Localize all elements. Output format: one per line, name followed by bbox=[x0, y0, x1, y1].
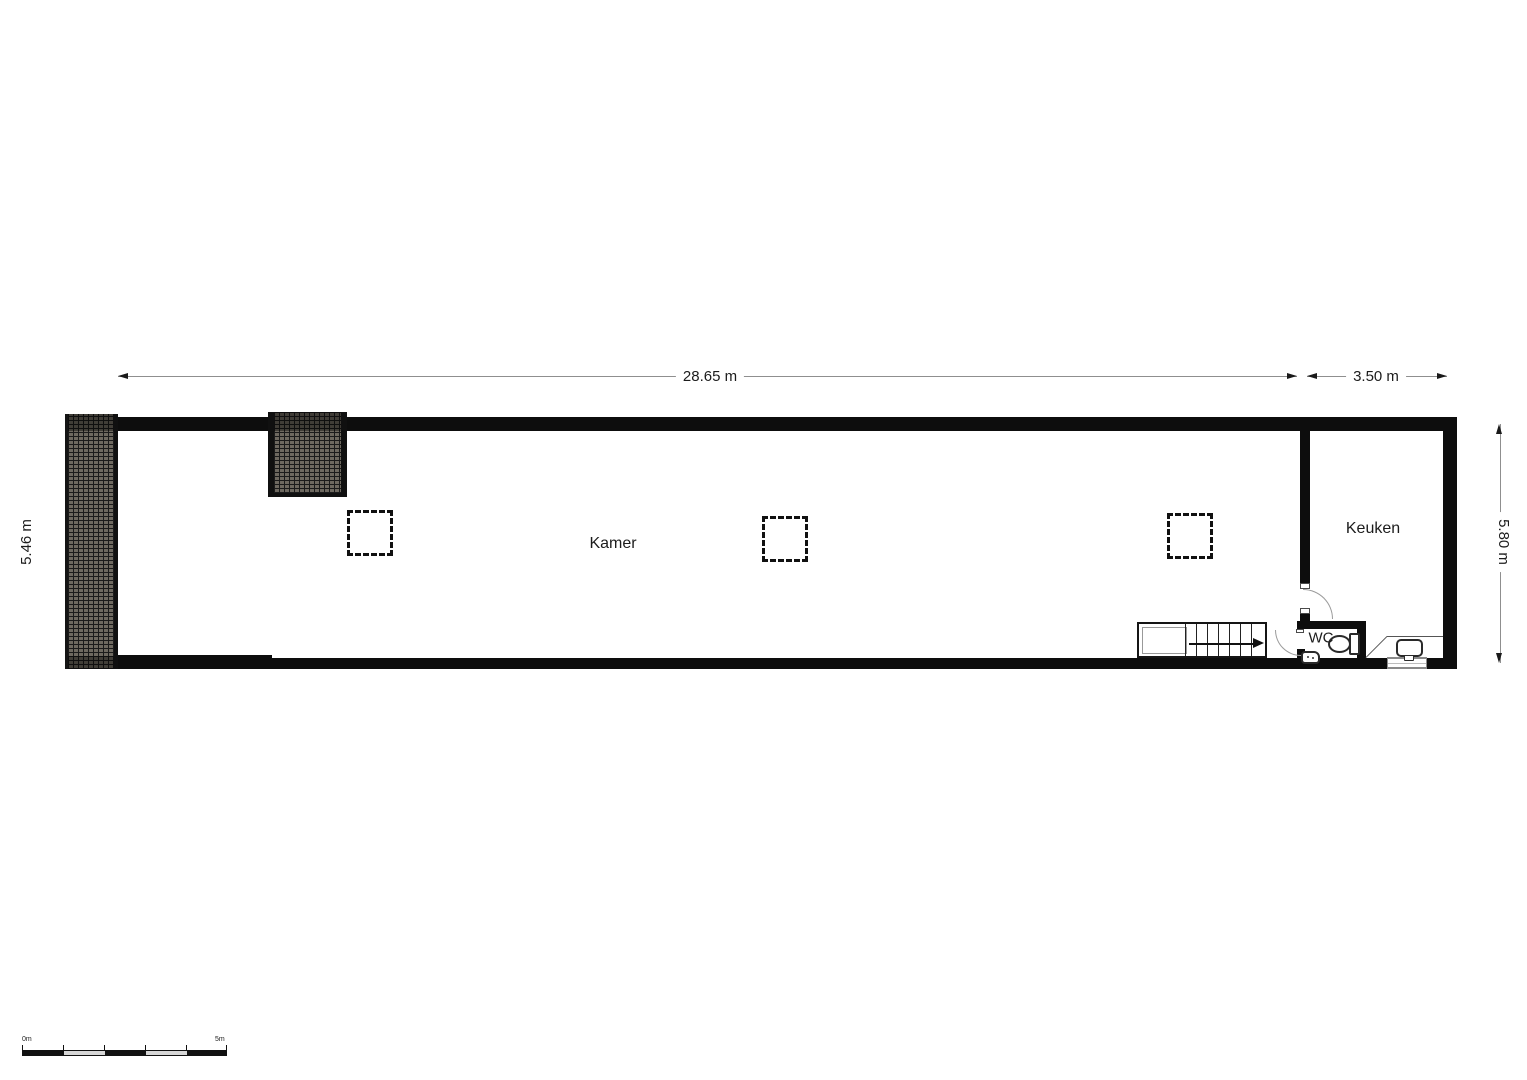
scale-zero-label: 0m bbox=[22, 1036, 32, 1044]
wall-divider-kitchen bbox=[1300, 431, 1310, 583]
scale-segment bbox=[105, 1051, 146, 1055]
stair-tread bbox=[1185, 624, 1186, 656]
arrowhead-left-icon bbox=[118, 373, 128, 379]
door-swing-arc-kitchen bbox=[1303, 589, 1333, 619]
scale-segment bbox=[23, 1051, 64, 1055]
masonry-shade bbox=[68, 414, 114, 431]
wc-handbasin-icon bbox=[1301, 651, 1320, 664]
door-swing-arc-wc bbox=[1275, 630, 1301, 656]
masonry-shade bbox=[274, 412, 341, 431]
wc-wall-top bbox=[1297, 621, 1366, 629]
column-marker bbox=[347, 510, 393, 556]
masonry-protrusion bbox=[268, 412, 347, 497]
scale-bar: 0m 5m bbox=[22, 1036, 228, 1058]
scale-segment bbox=[146, 1051, 187, 1055]
room-label-keuken: Keuken bbox=[1346, 520, 1400, 538]
stairs-direction-line bbox=[1189, 643, 1255, 645]
arrowhead-up-icon bbox=[1496, 424, 1502, 434]
stair-tread bbox=[1218, 624, 1219, 656]
masonry-wall-left bbox=[65, 414, 118, 669]
scale-bar-track bbox=[22, 1050, 227, 1056]
stair-tread bbox=[1207, 624, 1208, 656]
scale-max-label: 5m bbox=[215, 1036, 225, 1044]
dimension-label-top-main: 28.65 m bbox=[676, 368, 744, 386]
tap-dot-icon bbox=[1312, 657, 1314, 659]
window-glass-line bbox=[1388, 663, 1426, 664]
counter-edge-diagonal bbox=[1366, 636, 1388, 658]
stairs bbox=[1137, 622, 1267, 658]
masonry-shade bbox=[68, 656, 114, 669]
stair-tread bbox=[1229, 624, 1230, 656]
scale-segment bbox=[187, 1051, 226, 1055]
stair-tread bbox=[1196, 624, 1197, 656]
column-marker bbox=[762, 516, 808, 562]
wall-bottom-left-segment bbox=[117, 655, 272, 669]
stairs-direction-arrow-icon bbox=[1253, 638, 1264, 648]
wall-bottom bbox=[272, 658, 1457, 669]
stairs-landing bbox=[1142, 627, 1187, 654]
column-marker bbox=[1167, 513, 1213, 559]
arrowhead-right-icon bbox=[1287, 373, 1297, 379]
dimension-label-top-kitchen: 3.50 m bbox=[1346, 368, 1406, 386]
room-label-kamer: Kamer bbox=[589, 535, 636, 553]
arrowhead-left-icon bbox=[1307, 373, 1317, 379]
toilet-tank-icon bbox=[1349, 633, 1360, 655]
arrowhead-right-icon bbox=[1437, 373, 1447, 379]
counter-edge bbox=[1387, 636, 1443, 637]
scale-segment bbox=[64, 1051, 105, 1055]
room-label-wc: WC bbox=[1309, 630, 1334, 647]
dimension-label-right: 5.80 m bbox=[1494, 512, 1512, 572]
wall-right bbox=[1443, 417, 1457, 669]
stair-tread bbox=[1251, 624, 1252, 656]
tap-dot-icon bbox=[1307, 656, 1309, 658]
dimension-label-left: 5.46 m bbox=[18, 512, 36, 572]
stair-tread bbox=[1240, 624, 1241, 656]
arrowhead-down-icon bbox=[1496, 653, 1502, 663]
kitchen-tap-icon bbox=[1404, 655, 1414, 661]
floor-plan-canvas: 28.65 m 3.50 m 5.46 m 5.80 m bbox=[0, 0, 1527, 1080]
